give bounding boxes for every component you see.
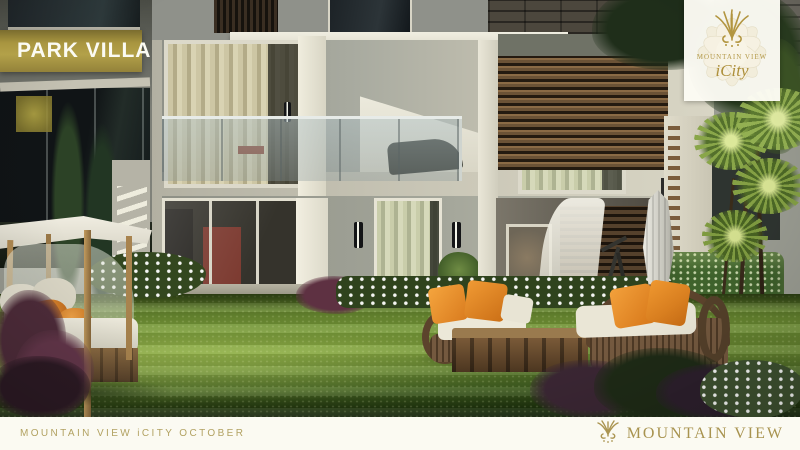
pillow-orange-1: [427, 283, 468, 324]
park-villa-slide: PARK VILLA: [0, 0, 800, 450]
footer-brand-lockup: MOUNTAIN VIEW: [596, 420, 784, 447]
logo-subbrand-text: iCity: [684, 61, 780, 81]
pillow-orange-4: [645, 279, 691, 327]
lotus-flower-icon: [684, 0, 780, 101]
palm-head-4: [702, 210, 768, 262]
top-window-glass: [328, 0, 412, 34]
icity-logo-card: MOUNTAIN VIEW iCity: [684, 0, 780, 101]
top-window-blinds: [214, 0, 278, 33]
badge-label: PARK VILLA: [0, 39, 151, 63]
cabana-post-right: [126, 236, 132, 360]
sofa-right-arm: [698, 296, 730, 362]
palm-head-3: [732, 158, 800, 214]
pillow-white-1: [500, 294, 534, 325]
footer-brand-text: MOUNTAIN VIEW: [627, 425, 784, 443]
balcony-slab: [148, 168, 688, 198]
palm-crest-icon: [596, 420, 620, 447]
left-top-glass: [8, 0, 140, 30]
footer-bar: MOUNTAIN VIEW iCITY OCTOBER MOUNTAIN VIE…: [0, 417, 800, 450]
wood-louver-screen: [498, 56, 668, 170]
left-yellow-wall: [16, 96, 52, 132]
front-flowerbed-right: [700, 360, 800, 417]
park-villa-badge: PARK VILLA: [0, 30, 142, 72]
wall-lamp-right: [452, 222, 461, 248]
footer-project-label: MOUNTAIN VIEW iCITY OCTOBER: [20, 428, 245, 439]
logo-brand-text: MOUNTAIN VIEW: [684, 53, 780, 61]
wall-lamp-left: [354, 222, 363, 248]
purple-bush-left-3: [0, 356, 90, 417]
